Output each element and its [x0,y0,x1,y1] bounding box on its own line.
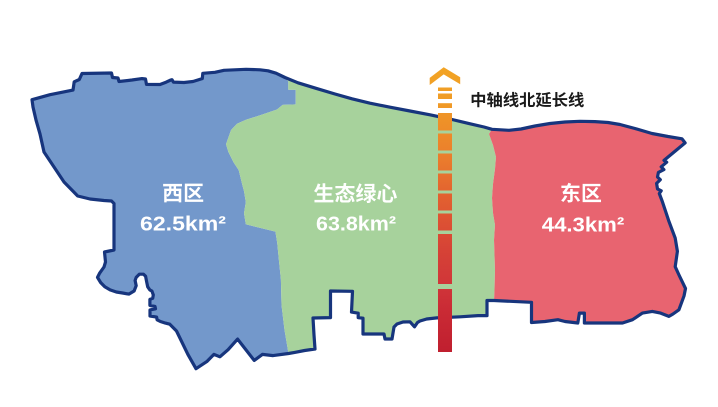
svg-text:44.3km²: 44.3km² [542,215,625,237]
svg-text:63.8km²: 63.8km² [316,213,396,235]
svg-text:62.5km²: 62.5km² [140,214,226,236]
